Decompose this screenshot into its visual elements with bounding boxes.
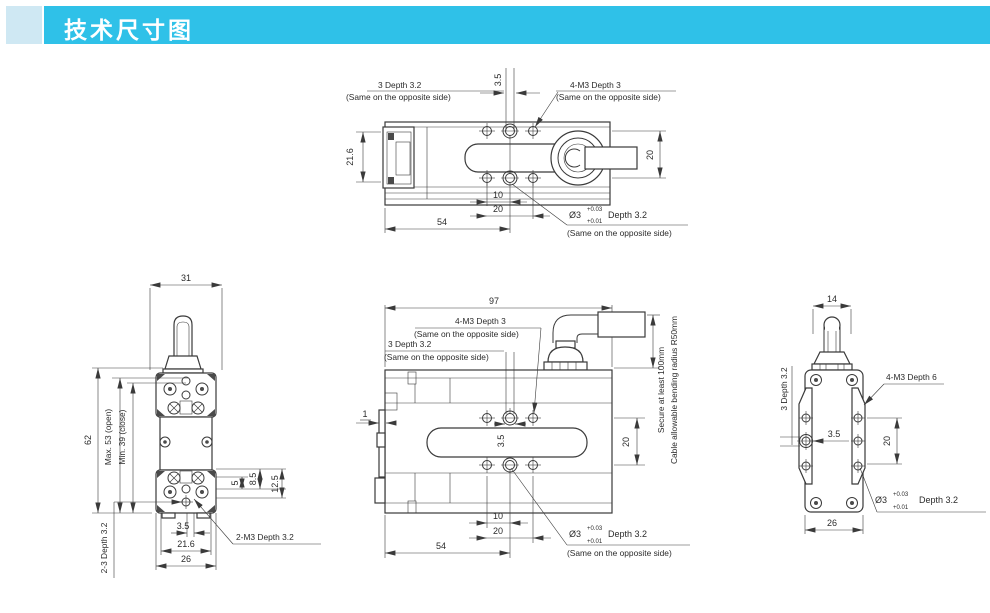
side-dim-20-bottom: 20 — [493, 526, 503, 536]
front-dim-31: 31 — [181, 273, 191, 283]
top-note-3-depth: 3 Depth 3.2 — [378, 80, 422, 90]
top-dia-tol-dn: +0.01 — [587, 219, 603, 225]
top-dim-54: 54 — [437, 217, 447, 227]
front-dim-62: 62 — [83, 435, 93, 445]
technical-dimension-page: 技术尺寸图 — [0, 0, 990, 613]
front-dim-8-5: 8.5 — [248, 473, 258, 486]
end-view-part-outline — [799, 317, 865, 512]
end-dia-tol-dn: +0.01 — [893, 505, 909, 511]
end-dim-20: 20 — [882, 436, 892, 446]
side-note-cable: Cable allowable bending radius R50mm — [669, 316, 679, 464]
side-dim-1: 1 — [362, 409, 367, 419]
top-note-4m3: 4-M3 Depth 3 — [570, 80, 621, 90]
front-view-part-outline — [156, 316, 216, 518]
side-dia-tol-dn: +0.01 — [587, 539, 603, 545]
top-dim-10: 10 — [493, 190, 503, 200]
front-dim-26: 26 — [181, 554, 191, 564]
side-note-4m3-sub: (Same on the opposite side) — [414, 329, 519, 339]
side-dim-54: 54 — [436, 541, 446, 551]
end-dim-3-5: 3.5 — [828, 429, 841, 439]
front-note-2-3-depth: 2-3 Depth 3.2 — [99, 522, 109, 573]
side-note-3-depth-sub: (Same on the opposite side) — [384, 352, 489, 362]
top-dia-prefix: Ø3 — [569, 210, 581, 220]
top-view: 3.5 3 Depth 3.2 (Same on the opposite si… — [345, 68, 688, 238]
front-dim-21-6: 21.6 — [177, 539, 195, 549]
front-dim-3-5: 3.5 — [177, 521, 190, 531]
end-dim-14: 14 — [827, 294, 837, 304]
end-dim-26: 26 — [827, 518, 837, 528]
side-dim-20-side: 20 — [621, 437, 631, 447]
front-dim-max-open: Max. 53 (open) — [103, 409, 113, 466]
technical-drawing-canvas: 3.5 3 Depth 3.2 (Same on the opposite si… — [0, 0, 990, 613]
end-dia-prefix: Ø3 — [875, 495, 887, 505]
end-note-4m3: 4-M3 Depth 6 — [886, 372, 937, 382]
side-dia-suffix: Depth 3.2 — [608, 529, 647, 539]
front-dim-5: 5 — [230, 480, 240, 485]
end-dia-suffix: Depth 3.2 — [919, 495, 958, 505]
side-note-secure: Secure at least 100mm — [656, 347, 666, 433]
end-dia-tol-up: +0.03 — [893, 492, 909, 498]
top-dim-20-bottom: 20 — [493, 204, 503, 214]
side-view: 97 4-M3 Depth 3 (Same on the opposite si… — [356, 296, 690, 558]
top-dia-tol-up: +0.03 — [587, 207, 603, 213]
front-dim-12-5: 12.5 — [270, 475, 280, 493]
side-dia-note: (Same on the opposite side) — [567, 548, 672, 558]
front-dim-min-close: Min. 39 (close) — [117, 409, 127, 464]
side-dia-prefix: Ø3 — [569, 529, 581, 539]
side-dim-3-5: 3.5 — [496, 435, 506, 448]
top-dim-3-5: 3.5 — [493, 74, 503, 87]
top-dia-note: (Same on the opposite side) — [567, 228, 672, 238]
top-note-4m3-sub: (Same on the opposite side) — [556, 92, 661, 102]
end-note-3-depth: 3 Depth 3.2 — [779, 367, 789, 411]
front-view: 31 62 Max. 53 (open) Min. 39 (close) 5 8… — [83, 273, 321, 578]
top-dim-21-6: 21.6 — [345, 148, 355, 166]
side-note-4m3: 4-M3 Depth 3 — [455, 316, 506, 326]
top-dia-suffix: Depth 3.2 — [608, 210, 647, 220]
top-note-3-depth-sub: (Same on the opposite side) — [346, 92, 451, 102]
side-dim-10: 10 — [493, 511, 503, 521]
top-dim-20-side: 20 — [645, 150, 655, 160]
side-dia-tol-up: +0.03 — [587, 526, 603, 532]
front-note-2m3: 2-M3 Depth 3.2 — [236, 532, 294, 542]
side-dim-97: 97 — [489, 296, 499, 306]
end-view: 14 3 Depth 3.2 4-M3 Depth 6 3.5 20 Ø3 +0… — [779, 294, 986, 534]
side-note-3-depth: 3 Depth 3.2 — [388, 339, 432, 349]
